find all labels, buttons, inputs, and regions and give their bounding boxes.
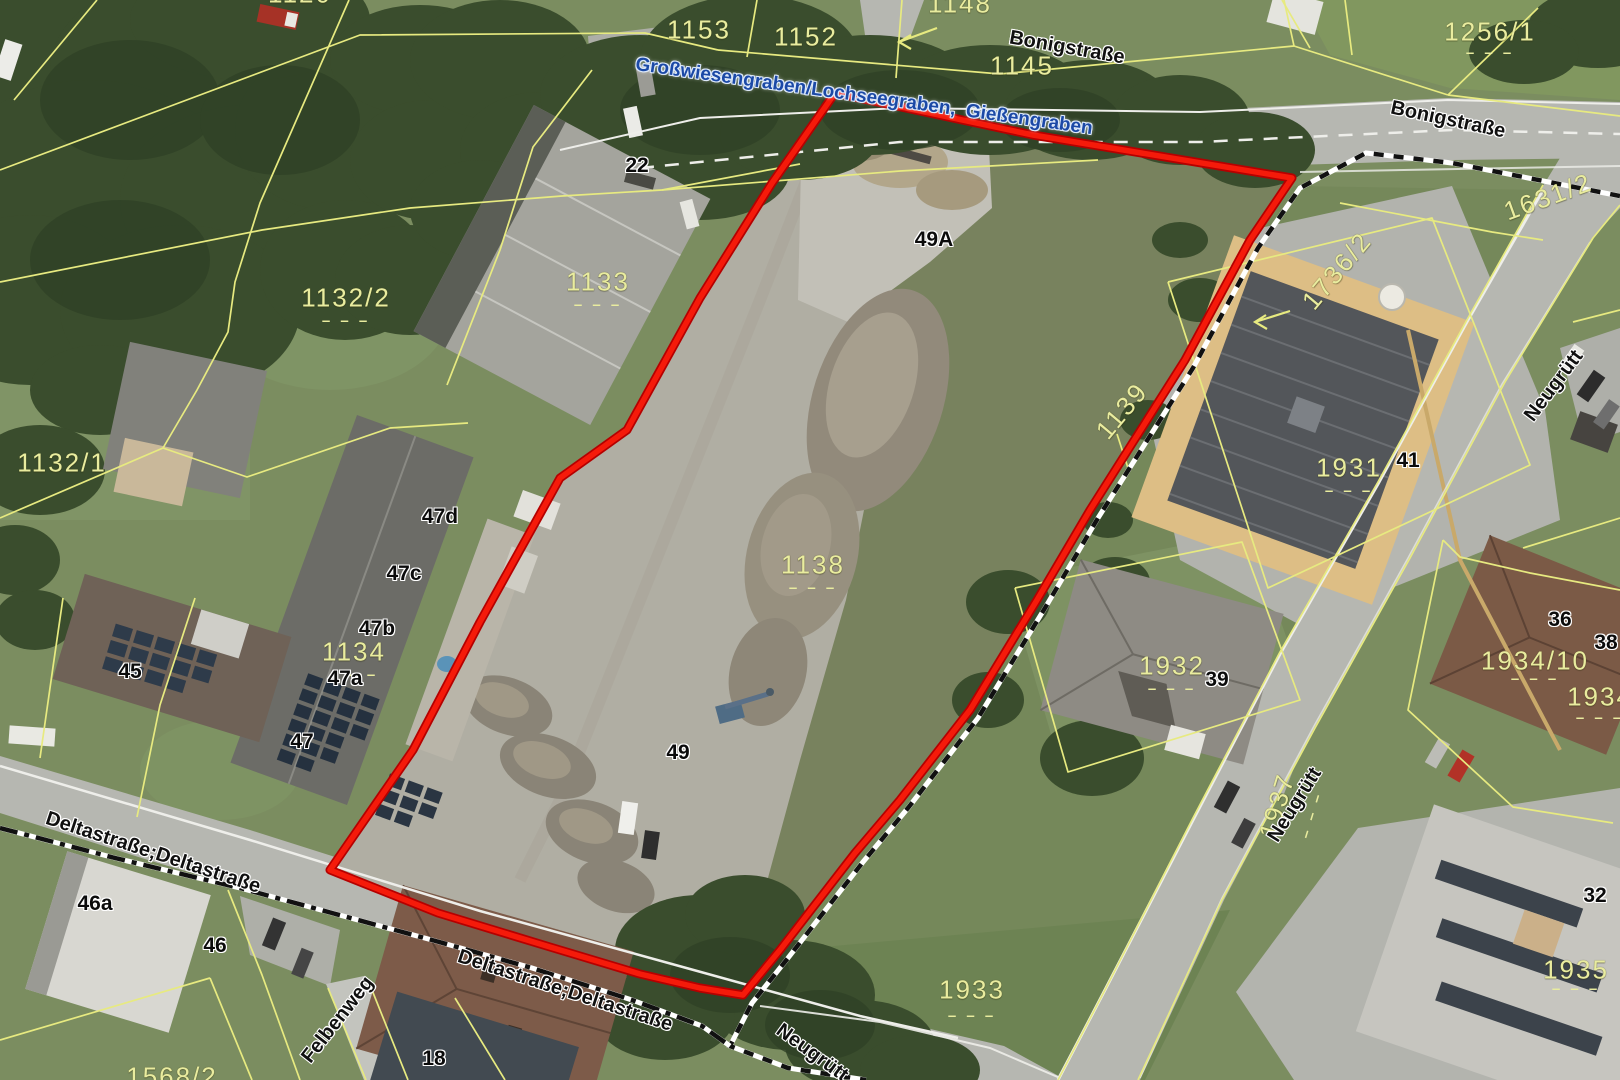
- house-number-38: 38: [1594, 631, 1617, 655]
- parcel-dashes-1934: – – –: [1576, 710, 1620, 727]
- map-label-layer: Großwiesengraben/Lochseegraben, Gießengr…: [0, 0, 1620, 1080]
- house-number-18: 18: [422, 1047, 445, 1071]
- street-label-Felbenweg: Felbenweg: [297, 972, 379, 1068]
- parcel-dashes-1935: – – –: [1552, 981, 1600, 998]
- house-number-22: 22: [625, 154, 648, 178]
- house-number-41: 41: [1396, 449, 1419, 473]
- parcel-label-1138: 1138: [781, 550, 845, 581]
- street-label-Neugr-tt: Neugrütt: [772, 1019, 853, 1080]
- parcel-label-1145: 1145: [990, 51, 1054, 82]
- house-number-39: 39: [1205, 668, 1228, 692]
- parcel-label-1568-2: 1568/2: [126, 1062, 218, 1080]
- parcel-label-1933: 1933: [939, 975, 1005, 1006]
- map-canvas[interactable]: Großwiesengraben/Lochseegraben, Gießengr…: [0, 0, 1620, 1080]
- house-number-47b: 47b: [359, 617, 395, 641]
- street-label-Neugr-tt: Neugrütt: [1520, 346, 1589, 426]
- parcel-label-1631-2: 1631/2: [1500, 167, 1597, 227]
- parcel-label-1134: 1134: [322, 637, 386, 668]
- parcel-dashes-1931: – – –: [1325, 483, 1373, 500]
- parcel-dashes-1133: – – –: [574, 297, 622, 314]
- parcel-label-1932: 1932: [1139, 651, 1205, 682]
- parcel-dashes-1932: – – –: [1148, 681, 1196, 698]
- house-number-46a: 46a: [77, 892, 112, 916]
- parcel-label-1256-1: 1256/1: [1444, 17, 1536, 48]
- parcel-dashes-1132-2: – – –: [322, 313, 370, 330]
- waterway-label: Großwiesengraben/Lochseegraben, Gießengr…: [634, 54, 1094, 140]
- parcel-dashes-1937: – – –: [1297, 789, 1327, 840]
- parcel-label-1132-1: 1132/1: [17, 448, 107, 479]
- parcel-label-1931: 1931: [1316, 453, 1382, 484]
- house-number-32: 32: [1583, 884, 1606, 908]
- street-label-Neugr-tt: Neugrütt: [1263, 764, 1327, 847]
- house-number-47d: 47d: [422, 505, 458, 529]
- house-number-45: 45: [118, 660, 141, 684]
- parcel-label-1153: 1153: [667, 15, 731, 46]
- street-label-Deltastra-e-Deltastra-e: Deltastraße;Deltastraße: [455, 945, 676, 1036]
- parcel-dashes-1934-10: – – –: [1511, 671, 1559, 688]
- parcel-label-1133: 1133: [566, 267, 630, 298]
- parcel-label-1139: 1139: [1090, 377, 1155, 446]
- parcel-label-1937: 1937: [1253, 770, 1302, 842]
- parcel-label-1934-10: 1934/10: [1481, 646, 1589, 677]
- parcel-label-1152: 1152: [774, 22, 838, 53]
- parcel-label-1148: 1148: [928, 0, 992, 20]
- house-number-47: 47: [290, 730, 313, 754]
- street-label-Deltastra-e-Deltastra-e: Deltastraße;Deltastraße: [43, 807, 264, 898]
- parcel-dashes-1933: – – –: [948, 1008, 996, 1025]
- parcel-dashes-1256-1: – – –: [1466, 45, 1514, 62]
- parcel-dashes-1134: – – –: [330, 667, 378, 684]
- parcel-dashes-1138: – – –: [789, 580, 837, 597]
- house-number-47c: 47c: [386, 562, 421, 586]
- house-number-46: 46: [203, 934, 226, 958]
- house-number-36: 36: [1548, 608, 1571, 632]
- house-number-47a: 47a: [327, 667, 362, 691]
- parcel-label-1935: 1935: [1543, 955, 1609, 986]
- parcel-label-1736-2: 1736/2: [1296, 226, 1379, 316]
- house-number-49: 49: [666, 741, 689, 765]
- house-number-49A: 49A: [915, 228, 954, 252]
- parcel-label-1132-2: 1132/2: [301, 283, 391, 314]
- parcel-label-1934: 1934: [1567, 682, 1620, 713]
- parcel-label-1120: 1120: [268, 0, 332, 10]
- street-label-Bonigstra-e: Bonigstraße: [1389, 97, 1508, 144]
- street-label-Bonigstra-e: Bonigstraße: [1008, 27, 1127, 70]
